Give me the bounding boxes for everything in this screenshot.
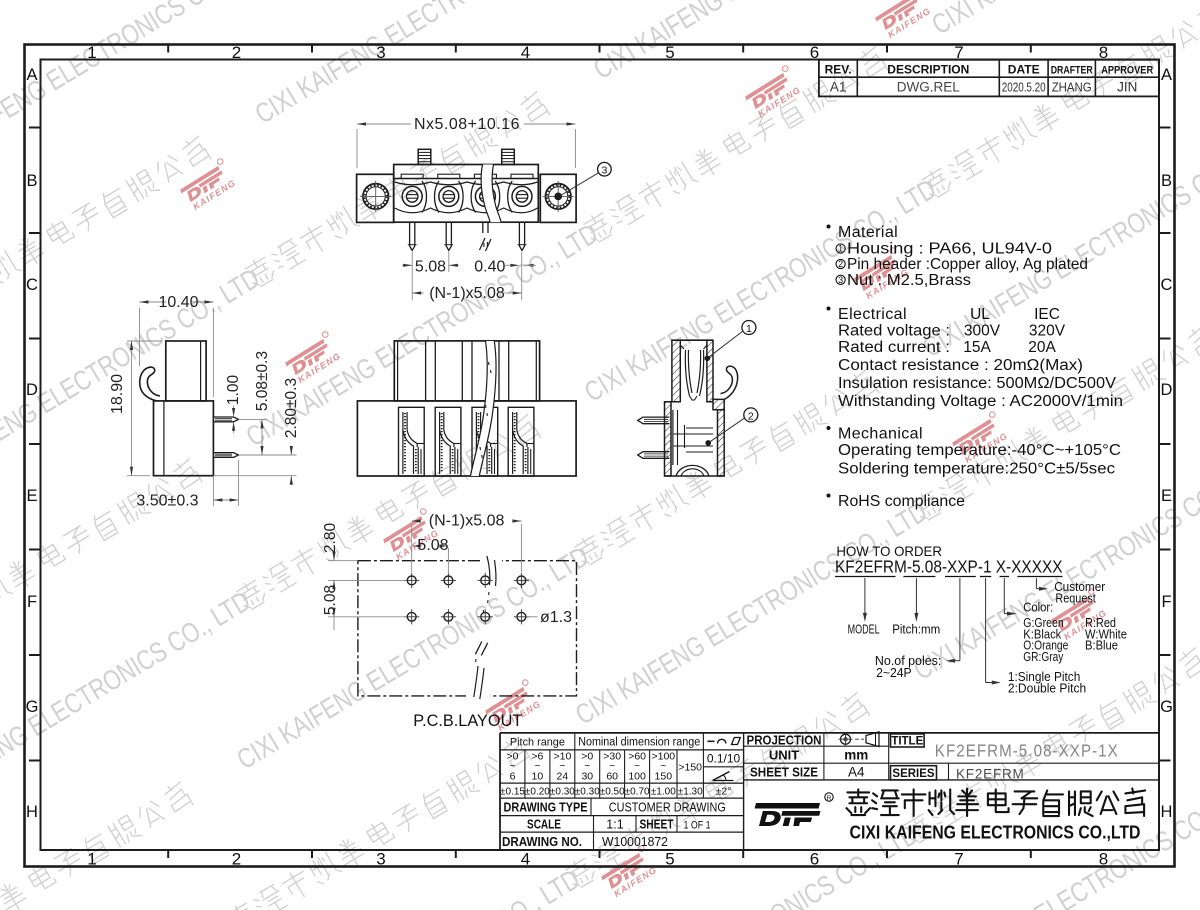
svg-text:SCALE: SCALE	[527, 818, 561, 832]
svg-text:18.90: 18.90	[109, 374, 126, 414]
svg-text:15A: 15A	[963, 339, 991, 356]
svg-text:A4: A4	[848, 764, 865, 779]
svg-text:5.08: 5.08	[417, 537, 448, 554]
svg-text:ZHANG: ZHANG	[1052, 80, 1092, 95]
svg-text:2020.5.20: 2020.5.20	[1002, 80, 1046, 95]
svg-text:DWG.REL: DWG.REL	[897, 80, 960, 95]
svg-text:E: E	[1161, 487, 1172, 505]
svg-text:P.C.B.LAYOUT: P.C.B.LAYOUT	[413, 712, 522, 730]
svg-text:H: H	[1161, 803, 1173, 821]
svg-text:10: 10	[532, 771, 544, 783]
svg-text:60: 60	[606, 771, 618, 783]
svg-text:B: B	[1161, 172, 1172, 190]
svg-text:3.50±0.3: 3.50±0.3	[136, 493, 198, 510]
svg-text:Rated voltage :: Rated voltage :	[838, 323, 950, 340]
svg-text:7: 7	[954, 850, 963, 869]
svg-text:5.08±0.3: 5.08±0.3	[254, 351, 271, 411]
svg-text:H: H	[26, 803, 38, 821]
svg-text:DRAWING TYPE: DRAWING TYPE	[504, 801, 588, 815]
svg-text:REV.: REV.	[825, 62, 852, 76]
svg-text:2.80: 2.80	[322, 523, 339, 554]
svg-text:20A: 20A	[1028, 339, 1056, 356]
svg-text:±0.50: ±0.50	[600, 787, 625, 798]
svg-text:Request: Request	[1055, 591, 1096, 605]
svg-text:UL: UL	[970, 306, 990, 323]
svg-text:E: E	[26, 487, 37, 505]
svg-text:10.40: 10.40	[158, 294, 198, 311]
svg-text:5: 5	[665, 850, 674, 869]
svg-text:APPROVER: APPROVER	[1101, 64, 1153, 76]
svg-text:DATE: DATE	[1008, 62, 1040, 76]
svg-text:5: 5	[665, 43, 674, 62]
svg-text:IEC: IEC	[1034, 306, 1060, 323]
svg-text:F: F	[1161, 593, 1171, 611]
svg-text:B: B	[26, 172, 37, 190]
svg-text:2:Double Pitch: 2:Double Pitch	[1008, 681, 1086, 695]
svg-text:UNIT: UNIT	[769, 748, 799, 763]
svg-text:SHEET: SHEET	[640, 818, 674, 832]
svg-text:GR:Gray: GR:Gray	[1023, 650, 1064, 664]
svg-text:B:Blue: B:Blue	[1085, 639, 1118, 653]
svg-text:A: A	[1161, 66, 1172, 84]
svg-text:3: 3	[376, 850, 385, 869]
svg-text:300V: 300V	[964, 323, 1001, 340]
svg-text:DRAWING NO.: DRAWING NO.	[502, 835, 582, 849]
svg-text:±1.30: ±1.30	[678, 787, 703, 798]
svg-text:±2°: ±2°	[716, 786, 732, 798]
svg-text:30: 30	[581, 771, 593, 783]
svg-text:2: 2	[232, 43, 241, 62]
svg-text:MODEL: MODEL	[848, 623, 880, 637]
svg-text:Contact resistance : 20mΩ(M: Contact resistance : 20mΩ(Max)	[838, 357, 1083, 374]
svg-text:ø1.3: ø1.3	[540, 609, 572, 626]
svg-text:Operating temperature:-40°C~+: Operating temperature:-40°C~+105°C	[838, 442, 1121, 459]
svg-text:5.08: 5.08	[415, 259, 446, 276]
svg-text:JIN: JIN	[1117, 80, 1137, 95]
svg-text:A: A	[26, 66, 37, 84]
svg-text:Color:: Color:	[1023, 601, 1053, 615]
svg-text:KF2EFRM: KF2EFRM	[956, 767, 1025, 782]
svg-text:Nut : M2.5,Brass: Nut : M2.5,Brass	[847, 272, 971, 289]
svg-text:TITLE: TITLE	[891, 736, 923, 748]
svg-text:6: 6	[810, 43, 819, 62]
svg-text:1:1: 1:1	[606, 818, 623, 832]
svg-text:KF2EFRM-5.08-XXP-1 X-XXXXX: KF2EFRM-5.08-XXP-1 X-XXXXX	[835, 557, 1063, 577]
svg-text:1.00: 1.00	[225, 375, 242, 406]
svg-text:8: 8	[1099, 850, 1108, 869]
svg-text:R: R	[827, 795, 832, 802]
svg-text:6: 6	[810, 850, 819, 869]
svg-text:DESCRIPTION: DESCRIPTION	[887, 62, 969, 76]
svg-text:±0.30: ±0.30	[550, 787, 575, 798]
svg-text:CUSTOMER DRAWING: CUSTOMER DRAWING	[609, 801, 726, 815]
svg-text:DRAFTER: DRAFTER	[1051, 64, 1093, 76]
svg-text:PROJECTION: PROJECTION	[747, 733, 822, 747]
svg-text:4: 4	[521, 43, 530, 62]
svg-text:Insulation resistance: 500MΩ: Insulation resistance: 500MΩ/DC500V	[838, 375, 1117, 392]
svg-text:150: 150	[655, 771, 673, 783]
svg-text:Material: Material	[838, 224, 898, 241]
svg-text:±0.70: ±0.70	[625, 787, 650, 798]
svg-text:A1: A1	[830, 80, 847, 95]
svg-text:Soldering temperature:250°C±5: Soldering temperature:250°C±5/5sec	[838, 461, 1115, 478]
svg-text:Withstanding Voltage : AC20: Withstanding Voltage : AC2000V/1min	[838, 393, 1123, 410]
svg-text:Nx5.08+10.16: Nx5.08+10.16	[414, 116, 520, 133]
svg-text:1: 1	[838, 244, 843, 254]
svg-text:Mechanical: Mechanical	[838, 426, 923, 443]
svg-text:G: G	[26, 698, 39, 716]
svg-text:(N-1)x5.08: (N-1)x5.08	[429, 513, 505, 530]
svg-text:G: G	[1160, 698, 1173, 716]
svg-text:Pitch range: Pitch range	[510, 737, 565, 749]
svg-text:RoHS compliance: RoHS compliance	[838, 493, 965, 510]
svg-text:±1.00: ±1.00	[651, 787, 676, 798]
svg-text:D: D	[1161, 381, 1173, 399]
svg-text:0.1/10: 0.1/10	[707, 752, 741, 766]
svg-text:100: 100	[628, 771, 646, 783]
svg-text:KF2EFRM-5.08-XXP-1X: KF2EFRM-5.08-XXP-1X	[935, 741, 1119, 761]
svg-text:Nominal dimension range: Nominal dimension range	[578, 737, 700, 749]
svg-text:D: D	[26, 381, 38, 399]
svg-text:6: 6	[510, 771, 516, 783]
svg-text:0.40: 0.40	[474, 259, 505, 276]
svg-text:1: 1	[87, 43, 96, 62]
svg-text:3: 3	[838, 275, 843, 285]
svg-text:2: 2	[748, 410, 754, 422]
svg-text:24: 24	[557, 771, 569, 783]
svg-text:C: C	[1161, 276, 1173, 294]
svg-text:±0.30: ±0.30	[575, 787, 600, 798]
svg-text:1: 1	[746, 323, 752, 335]
svg-text:Rated current :: Rated current :	[838, 339, 950, 356]
svg-text:3: 3	[601, 165, 607, 177]
svg-text:4: 4	[521, 850, 530, 869]
svg-text:C: C	[26, 276, 38, 294]
svg-text:320V: 320V	[1029, 323, 1066, 340]
svg-text:2: 2	[838, 259, 843, 269]
svg-text:2~24P: 2~24P	[876, 666, 912, 680]
svg-text:W10001872: W10001872	[602, 834, 668, 849]
svg-text:Pin header :Copper alloy, Ag: Pin header :Copper alloy, Ag plated	[847, 256, 1088, 273]
svg-text:1: 1	[87, 850, 96, 869]
svg-text:±0.15: ±0.15	[500, 787, 525, 798]
svg-text:3: 3	[376, 43, 385, 62]
svg-text:1 OF 1: 1 OF 1	[684, 820, 711, 832]
svg-text:mm: mm	[844, 748, 868, 763]
svg-text:Housing : PA66, UL94V-0: Housing : PA66, UL94V-0	[847, 241, 1052, 258]
svg-text:SERIES: SERIES	[892, 768, 935, 780]
svg-text:2: 2	[232, 850, 241, 869]
svg-text:Electrical: Electrical	[838, 306, 907, 323]
svg-text:±0.20: ±0.20	[525, 787, 550, 798]
svg-text:(N-1)x5.08: (N-1)x5.08	[429, 285, 505, 302]
svg-text:>150: >150	[678, 762, 702, 774]
svg-text:Pitch:mm: Pitch:mm	[892, 623, 940, 637]
svg-text:CIXI KAIFENG ELECTRONICS CO.,L: CIXI KAIFENG ELECTRONICS CO.,LTD	[850, 823, 1141, 843]
svg-text:SHEET SIZE: SHEET SIZE	[750, 765, 818, 779]
svg-text:F: F	[27, 593, 37, 611]
svg-text:5.08: 5.08	[322, 585, 339, 615]
svg-text:2.80±0.3: 2.80±0.3	[283, 378, 300, 438]
